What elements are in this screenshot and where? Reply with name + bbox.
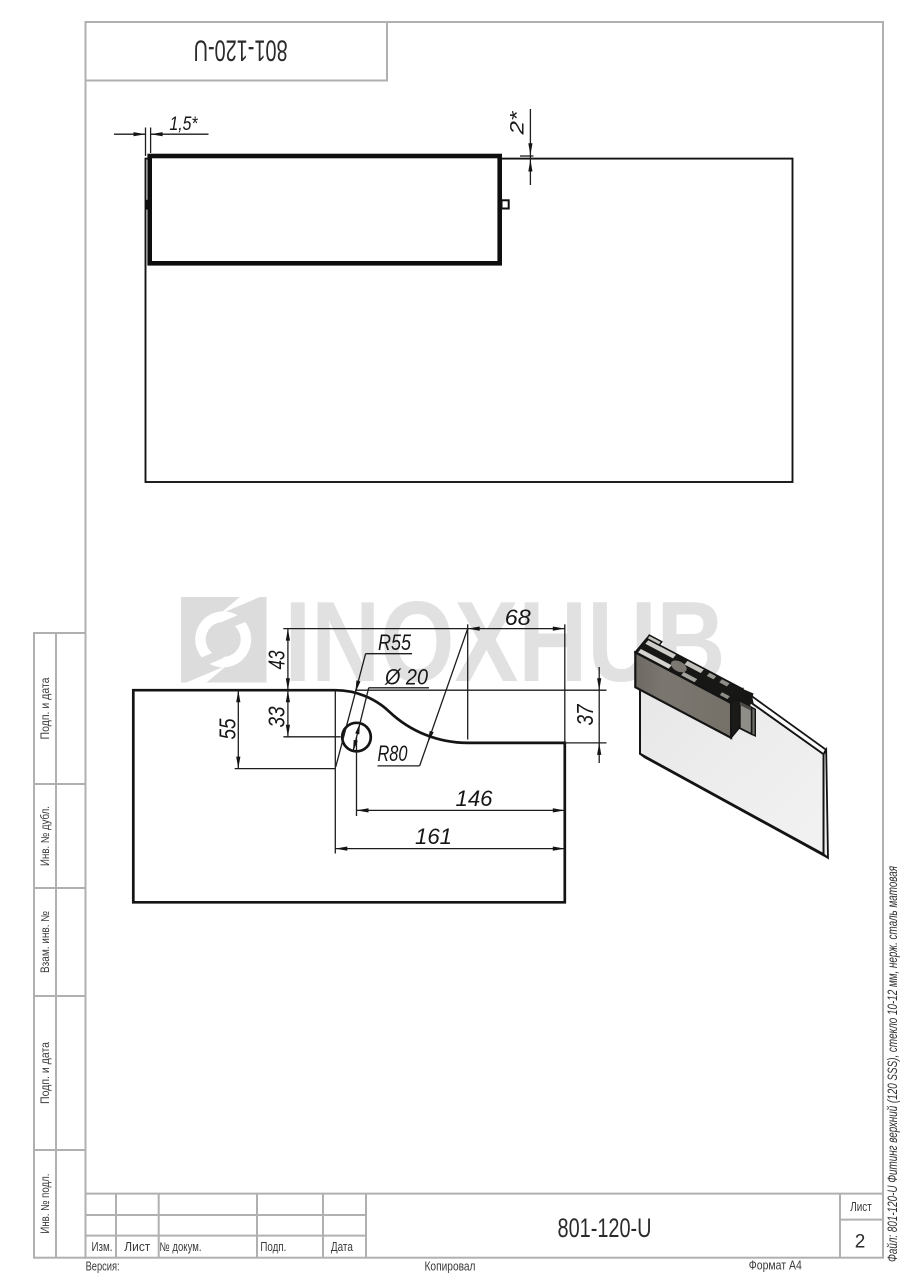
- svg-text:801-120-U: 801-120-U: [558, 1213, 652, 1243]
- svg-text:Копировал: Копировал: [425, 1260, 476, 1274]
- svg-text:146: 146: [456, 786, 494, 811]
- svg-text:Подп. и дата: Подп. и дата: [40, 1041, 52, 1104]
- svg-text:Изм.: Изм.: [92, 1240, 113, 1254]
- svg-text:Версия:: Версия:: [86, 1260, 120, 1274]
- svg-text:R55: R55: [378, 630, 412, 655]
- svg-text:55: 55: [215, 718, 241, 740]
- svg-text:Лист: Лист: [124, 1240, 150, 1254]
- svg-text:Инв. № дубл.: Инв. № дубл.: [40, 806, 52, 866]
- svg-text:33: 33: [264, 707, 290, 728]
- svg-text:Подп. и дата: Подп. и дата: [40, 677, 52, 740]
- svg-text:37: 37: [572, 704, 598, 726]
- svg-text:2: 2: [855, 1232, 866, 1253]
- svg-text:Формат A4: Формат A4: [749, 1259, 802, 1273]
- svg-text:43: 43: [264, 651, 290, 670]
- svg-text:R80: R80: [378, 741, 409, 766]
- svg-text:Файл: 801-120-U Фитинг верхний: Файл: 801-120-U Фитинг верхний (120 SSS)…: [885, 866, 900, 1262]
- svg-text:Лист: Лист: [850, 1200, 872, 1214]
- svg-text:801-120-U: 801-120-U: [194, 34, 288, 67]
- svg-text:1,5*: 1,5*: [170, 114, 198, 135]
- svg-text:2*: 2*: [508, 111, 529, 136]
- svg-text:Инв. № подл.: Инв. № подл.: [40, 1174, 52, 1234]
- svg-text:161: 161: [415, 824, 452, 849]
- svg-text:Взам. инв. №: Взам. инв. №: [40, 911, 52, 973]
- svg-text:Дата: Дата: [331, 1240, 353, 1254]
- svg-text:Подп.: Подп.: [260, 1240, 286, 1254]
- svg-text:Ø 20: Ø 20: [384, 665, 429, 690]
- svg-text:68: 68: [505, 605, 532, 630]
- svg-text:№ докум.: № докум.: [160, 1240, 202, 1254]
